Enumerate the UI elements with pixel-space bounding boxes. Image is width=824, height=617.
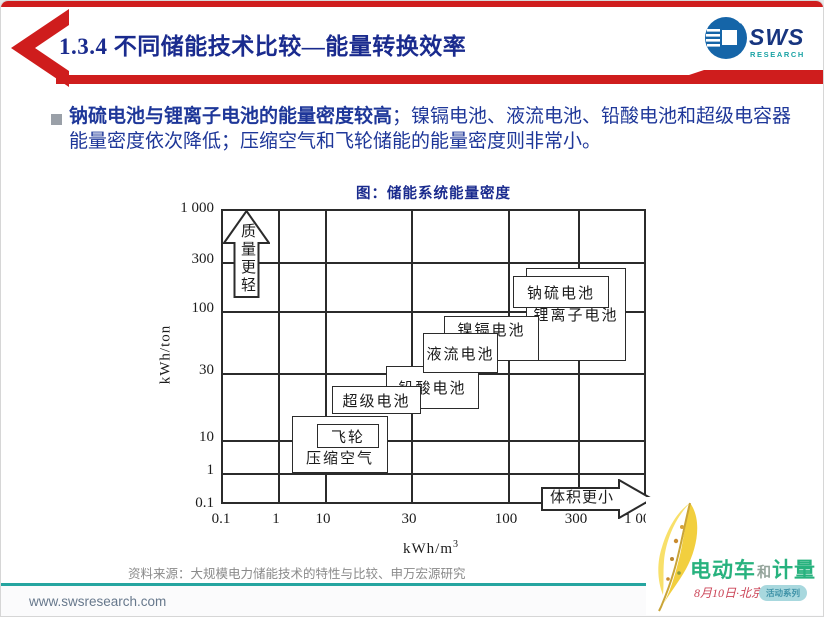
tech-box-flow-battery: 液流电池 [423, 333, 498, 373]
header-red-band [56, 70, 824, 84]
mass-lighter-arrow: 质量更轻 [223, 210, 270, 298]
watermark-date: 8月10日·北京 [694, 584, 763, 601]
y-tick-label: 10 [152, 429, 214, 446]
presentation-slide: 1.3.4 不同储能技术比较—能量转换效率 SWS RESEARCH 钠硫电池与… [0, 0, 824, 617]
x-tick-label: 30 [377, 511, 441, 528]
tech-box-supercapacitor: 超级电池 [332, 386, 421, 414]
sws-logo-subtext: RESEARCH [750, 50, 805, 59]
x-tick-label: 10 [291, 511, 355, 528]
sws-logo-text: SWS [749, 24, 804, 51]
mass-lighter-arrow-label: 质量更轻 [239, 223, 254, 295]
y-tick-label: 100 [152, 300, 214, 317]
top-red-bar [1, 1, 824, 7]
bullet-square-icon [51, 114, 62, 125]
watermark-badge: 活动系列 [759, 585, 807, 601]
volume-smaller-arrow-label: 体积更小 [545, 479, 619, 517]
event-watermark: 电动车和计量 8月10日·北京 活动系列 [646, 497, 824, 615]
watermark-title: 电动车和计量 [690, 554, 816, 584]
watermark-title-part3: 计量 [772, 559, 816, 582]
x-axis-label-base: kWh/m [403, 541, 453, 557]
tech-box-label-flow-battery: 液流电池 [426, 343, 494, 364]
bullet-paragraph: 钠硫电池与锂离子电池的能量密度较高；镍镉电池、液流电池、铅酸电池和超级电容器能量… [69, 104, 799, 154]
tech-box-label-flywheel: 飞轮 [331, 426, 365, 447]
page-title: 1.3.4 不同储能技术比较—能量转换效率 [59, 27, 679, 61]
y-tick-label: 1 [152, 462, 214, 479]
tech-box-label-supercapacitor: 超级电池 [342, 390, 410, 411]
gridline-horizontal [223, 440, 644, 442]
y-tick-label: 0.1 [152, 495, 214, 512]
watermark-title-part2: 和 [757, 564, 771, 580]
y-tick-label: 1 000 [152, 200, 214, 217]
gridline-vertical [278, 211, 280, 502]
source-note: 资料来源：大规模电力储能技术的特性与比较、申万宏源研究 [128, 563, 466, 582]
volume-smaller-arrow: 体积更小 [541, 479, 653, 519]
x-axis-label: kWh/m3 [376, 539, 486, 558]
tech-box-label-nas-battery: 钠硫电池 [527, 282, 595, 303]
gridline-horizontal [223, 473, 644, 475]
tech-box-nas-battery: 钠硫电池 [513, 276, 609, 308]
gridline-vertical [411, 211, 413, 502]
y-tick-label: 30 [152, 362, 214, 379]
tech-box-label-compressed-air: 压缩空气 [306, 447, 374, 472]
y-tick-label: 300 [152, 251, 214, 268]
tech-box-flywheel: 飞轮 [317, 424, 379, 448]
watermark-title-part1: 电动车 [690, 559, 756, 582]
y-axis-label: kWh/ton [158, 305, 175, 405]
footer-url: www.swsresearch.com [29, 594, 166, 609]
figure-title: 图：储能系统能量密度 [221, 182, 646, 203]
x-axis-label-exponent: 3 [453, 539, 459, 550]
bullet-bold-text: 钠硫电池与锂离子电池的能量密度较高 [69, 106, 392, 127]
x-tick-label: 100 [474, 511, 538, 528]
gridline-horizontal [223, 262, 644, 264]
